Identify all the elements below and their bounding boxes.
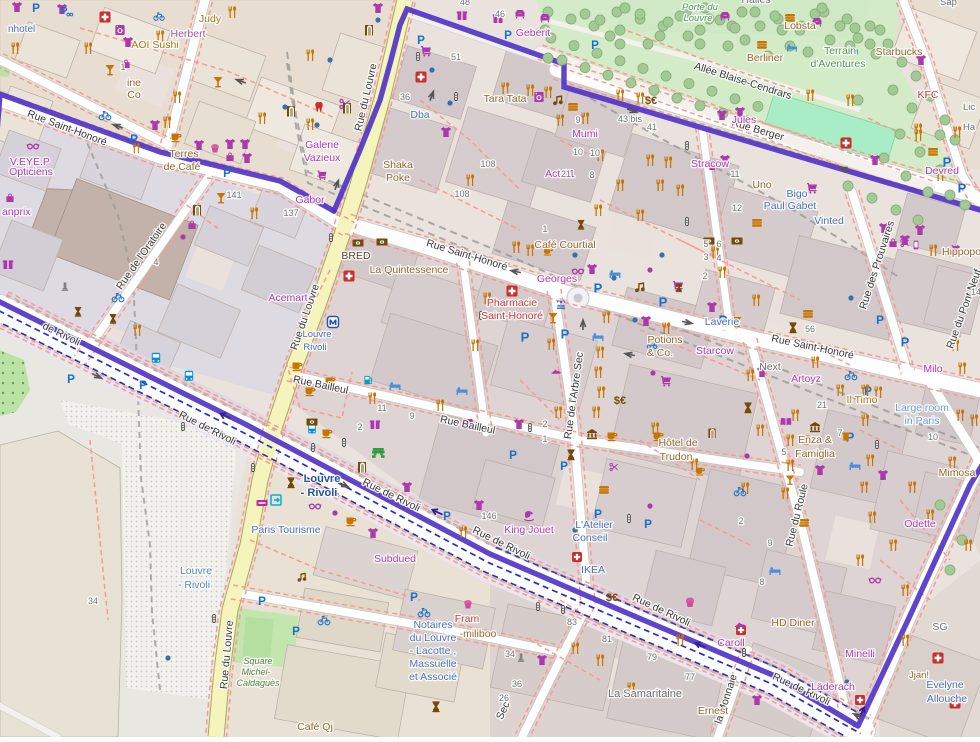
svg-text:79: 79 bbox=[647, 652, 657, 662]
svg-text:Starcow: Starcow bbox=[696, 345, 734, 357]
svg-text:9: 9 bbox=[409, 411, 414, 421]
svg-text:in Paris: in Paris bbox=[904, 415, 939, 427]
svg-text:Saint-Honoré: Saint-Honoré bbox=[481, 310, 543, 322]
svg-text:137: 137 bbox=[283, 208, 298, 218]
svg-text:83: 83 bbox=[567, 617, 577, 627]
svg-text:Jules: Jules bbox=[732, 114, 757, 126]
svg-text:21: 21 bbox=[817, 400, 827, 410]
svg-text:Co: Co bbox=[127, 89, 141, 101]
svg-text:34: 34 bbox=[505, 649, 515, 659]
svg-text:Terrain: Terrain bbox=[824, 45, 856, 57]
svg-text:4: 4 bbox=[716, 253, 721, 263]
svg-text:1: 1 bbox=[542, 434, 547, 444]
svg-text:Café Courtial: Café Courtial bbox=[534, 239, 595, 251]
svg-text:Minelli: Minelli bbox=[845, 648, 875, 660]
svg-text:Louvre: Louvre bbox=[304, 473, 341, 485]
svg-text:Poke: Poke bbox=[386, 172, 410, 184]
svg-text:48: 48 bbox=[460, 0, 470, 7]
svg-text:Uno: Uno bbox=[752, 179, 771, 191]
svg-text:Opticiens: Opticiens bbox=[9, 166, 53, 178]
svg-text:2: 2 bbox=[702, 271, 707, 281]
svg-text:- Rivoli: - Rivoli bbox=[301, 487, 338, 499]
svg-text:81: 81 bbox=[602, 634, 612, 644]
svg-text:Dba: Dba bbox=[410, 109, 429, 121]
svg-text:IKEA: IKEA bbox=[581, 564, 605, 576]
svg-text:Evelyne: Evelyne bbox=[926, 679, 964, 691]
svg-text:Hôtel de: Hôtel de bbox=[658, 437, 697, 449]
svg-text:nhotel: nhotel bbox=[8, 24, 35, 35]
svg-text:108: 108 bbox=[454, 189, 469, 199]
svg-text:et Associé: et Associé bbox=[409, 671, 457, 683]
svg-text:7: 7 bbox=[837, 428, 842, 438]
svg-text:SG: SG bbox=[932, 621, 947, 633]
svg-text:Artoyz: Artoyz bbox=[791, 373, 821, 385]
svg-text:La Quintessence: La Quintessence bbox=[370, 264, 449, 276]
svg-text:1: 1 bbox=[120, 62, 125, 72]
svg-text:12: 12 bbox=[732, 203, 742, 213]
svg-text:6: 6 bbox=[716, 239, 721, 249]
svg-text:Michel-: Michel- bbox=[241, 667, 270, 677]
svg-text:Fram: Fram bbox=[455, 613, 480, 625]
svg-text:Potions: Potions bbox=[647, 334, 682, 346]
svg-text:Trudon: Trudon bbox=[660, 451, 693, 463]
svg-text:21: 21 bbox=[561, 169, 571, 179]
svg-text:Odette: Odette bbox=[904, 518, 936, 530]
svg-text:Square: Square bbox=[243, 656, 272, 666]
svg-text:41: 41 bbox=[647, 122, 657, 132]
svg-text:14: 14 bbox=[971, 287, 980, 297]
svg-text:Subdued: Subdued bbox=[374, 553, 416, 565]
svg-text:56: 56 bbox=[805, 324, 815, 334]
svg-text:AOI Sushi: AOI Sushi bbox=[131, 39, 178, 51]
svg-text:Large room: Large room bbox=[895, 402, 949, 414]
svg-text:Mumi: Mumi bbox=[572, 128, 598, 140]
svg-text:2: 2 bbox=[357, 422, 362, 432]
svg-text:Devred: Devred bbox=[925, 165, 959, 177]
svg-text:- Lacotte ,: - Lacotte , bbox=[410, 645, 457, 657]
svg-text:La Samaritaine: La Samaritaine bbox=[608, 688, 682, 700]
svg-text:4: 4 bbox=[153, 257, 158, 267]
svg-text:34: 34 bbox=[88, 596, 98, 606]
svg-text:Läderach: Läderach bbox=[811, 681, 855, 693]
svg-text:8: 8 bbox=[589, 170, 594, 180]
svg-text:11: 11 bbox=[730, 169, 739, 179]
svg-text:146: 146 bbox=[481, 511, 496, 521]
svg-text:46: 46 bbox=[495, 9, 505, 19]
svg-text:Enza &: Enza & bbox=[798, 434, 832, 446]
svg-text:43 bis: 43 bis bbox=[618, 114, 643, 124]
svg-text:77: 77 bbox=[685, 672, 695, 682]
svg-text:8: 8 bbox=[759, 577, 764, 587]
svg-text:Gabor: Gabor bbox=[295, 194, 325, 206]
svg-text:Vinted: Vinted bbox=[814, 215, 844, 227]
svg-text:Stracow: Stracow bbox=[691, 158, 729, 170]
svg-text:Judy: Judy bbox=[199, 13, 222, 25]
svg-text:du Louvre: du Louvre bbox=[410, 632, 457, 644]
svg-text:9: 9 bbox=[767, 538, 772, 548]
svg-text:5: 5 bbox=[781, 447, 786, 457]
svg-text:Terres: Terres bbox=[169, 148, 198, 160]
svg-text:BRED: BRED bbox=[341, 250, 371, 262]
svg-text:Louvre: Louvre bbox=[302, 329, 331, 340]
svg-text:Rivoli: Rivoli bbox=[303, 342, 326, 353]
svg-text:Lobsta: Lobsta bbox=[784, 20, 816, 32]
svg-text:Shaka: Shaka bbox=[383, 159, 413, 171]
svg-text:& Co.: & Co. bbox=[647, 347, 673, 359]
svg-text:Caldaguès: Caldaguès bbox=[236, 678, 280, 688]
svg-text:108: 108 bbox=[480, 159, 495, 169]
svg-text:Hippopo: Hippopo bbox=[942, 246, 980, 258]
svg-text:141: 141 bbox=[226, 190, 241, 200]
svg-text:Geberit: Geberit bbox=[516, 27, 551, 39]
svg-text:- Rivoli: - Rivoli bbox=[178, 579, 210, 591]
svg-text:Halles: Halles bbox=[741, 0, 770, 6]
svg-text:Ha: Ha bbox=[963, 122, 976, 133]
svg-text:Sap: Sap bbox=[940, 0, 957, 8]
svg-text:Allouche: Allouche bbox=[927, 693, 967, 705]
svg-text:1: 1 bbox=[542, 224, 547, 234]
svg-text:Conseil: Conseil bbox=[572, 532, 607, 544]
svg-text:de Café: de Café bbox=[164, 161, 201, 173]
svg-text:Berliner: Berliner bbox=[747, 52, 784, 64]
svg-text:d'Aventures: d'Aventures bbox=[811, 58, 866, 70]
svg-text:HD Diner: HD Diner bbox=[771, 617, 815, 629]
svg-text:-miliboo: -miliboo bbox=[460, 628, 497, 640]
svg-text:36: 36 bbox=[400, 92, 410, 102]
svg-text:Louvre: Louvre bbox=[683, 13, 712, 24]
svg-text:Starbucks: Starbucks bbox=[876, 46, 923, 58]
svg-text:36: 36 bbox=[512, 679, 522, 689]
svg-text:KFC: KFC bbox=[918, 89, 939, 101]
svg-text:Paris Tourisme: Paris Tourisme bbox=[251, 524, 320, 536]
svg-text:2: 2 bbox=[738, 516, 743, 526]
svg-text:Ernest: Ernest bbox=[698, 705, 728, 717]
svg-text:anprix: anprix bbox=[2, 206, 31, 218]
svg-text:11: 11 bbox=[377, 403, 386, 413]
svg-text:Vazieux: Vazieux bbox=[304, 152, 341, 164]
svg-text:10: 10 bbox=[573, 147, 583, 157]
svg-text:Acemart: Acemart bbox=[268, 292, 307, 304]
svg-text:King Jouet: King Jouet bbox=[504, 524, 554, 536]
svg-text:Massuelle: Massuelle bbox=[409, 658, 456, 670]
svg-text:51: 51 bbox=[451, 52, 461, 62]
svg-text:Famiglia: Famiglia bbox=[795, 448, 835, 460]
svg-text:10: 10 bbox=[928, 432, 938, 442]
svg-text:Galerie: Galerie bbox=[305, 139, 339, 151]
svg-text:26: 26 bbox=[499, 693, 509, 703]
svg-text:Bigo: Bigo bbox=[786, 188, 807, 200]
svg-text:10: 10 bbox=[590, 148, 600, 158]
svg-text:5: 5 bbox=[703, 239, 708, 249]
svg-text:Pharmacie: Pharmacie bbox=[487, 297, 537, 309]
svg-text:ine: ine bbox=[127, 77, 141, 89]
svg-text:Georges: Georges bbox=[537, 273, 577, 285]
svg-text:L'Atelier: L'Atelier bbox=[575, 519, 613, 531]
svg-text:2: 2 bbox=[542, 419, 547, 429]
svg-text:Louvre: Louvre bbox=[180, 565, 212, 577]
svg-text:Next: Next bbox=[759, 361, 781, 373]
svg-text:Il Timo: Il Timo bbox=[847, 394, 878, 406]
svg-text:Lic: Lic bbox=[963, 102, 975, 113]
svg-text:Notaires: Notaires bbox=[413, 619, 452, 631]
svg-text:3: 3 bbox=[703, 252, 708, 262]
svg-text:Milo: Milo bbox=[923, 363, 942, 375]
svg-text:Tara Tata: Tara Tata bbox=[484, 93, 527, 105]
svg-text:9: 9 bbox=[575, 115, 580, 125]
svg-text:Porte du: Porte du bbox=[682, 2, 719, 13]
svg-text:Mimosa: Mimosa bbox=[939, 467, 976, 479]
svg-text:Laverie: Laverie bbox=[705, 316, 740, 328]
svg-text:Paul Gabet: Paul Gabet bbox=[764, 200, 817, 212]
svg-text:Caroll: Caroll bbox=[717, 637, 744, 649]
svg-text:Café Qj: Café Qj bbox=[297, 721, 333, 733]
